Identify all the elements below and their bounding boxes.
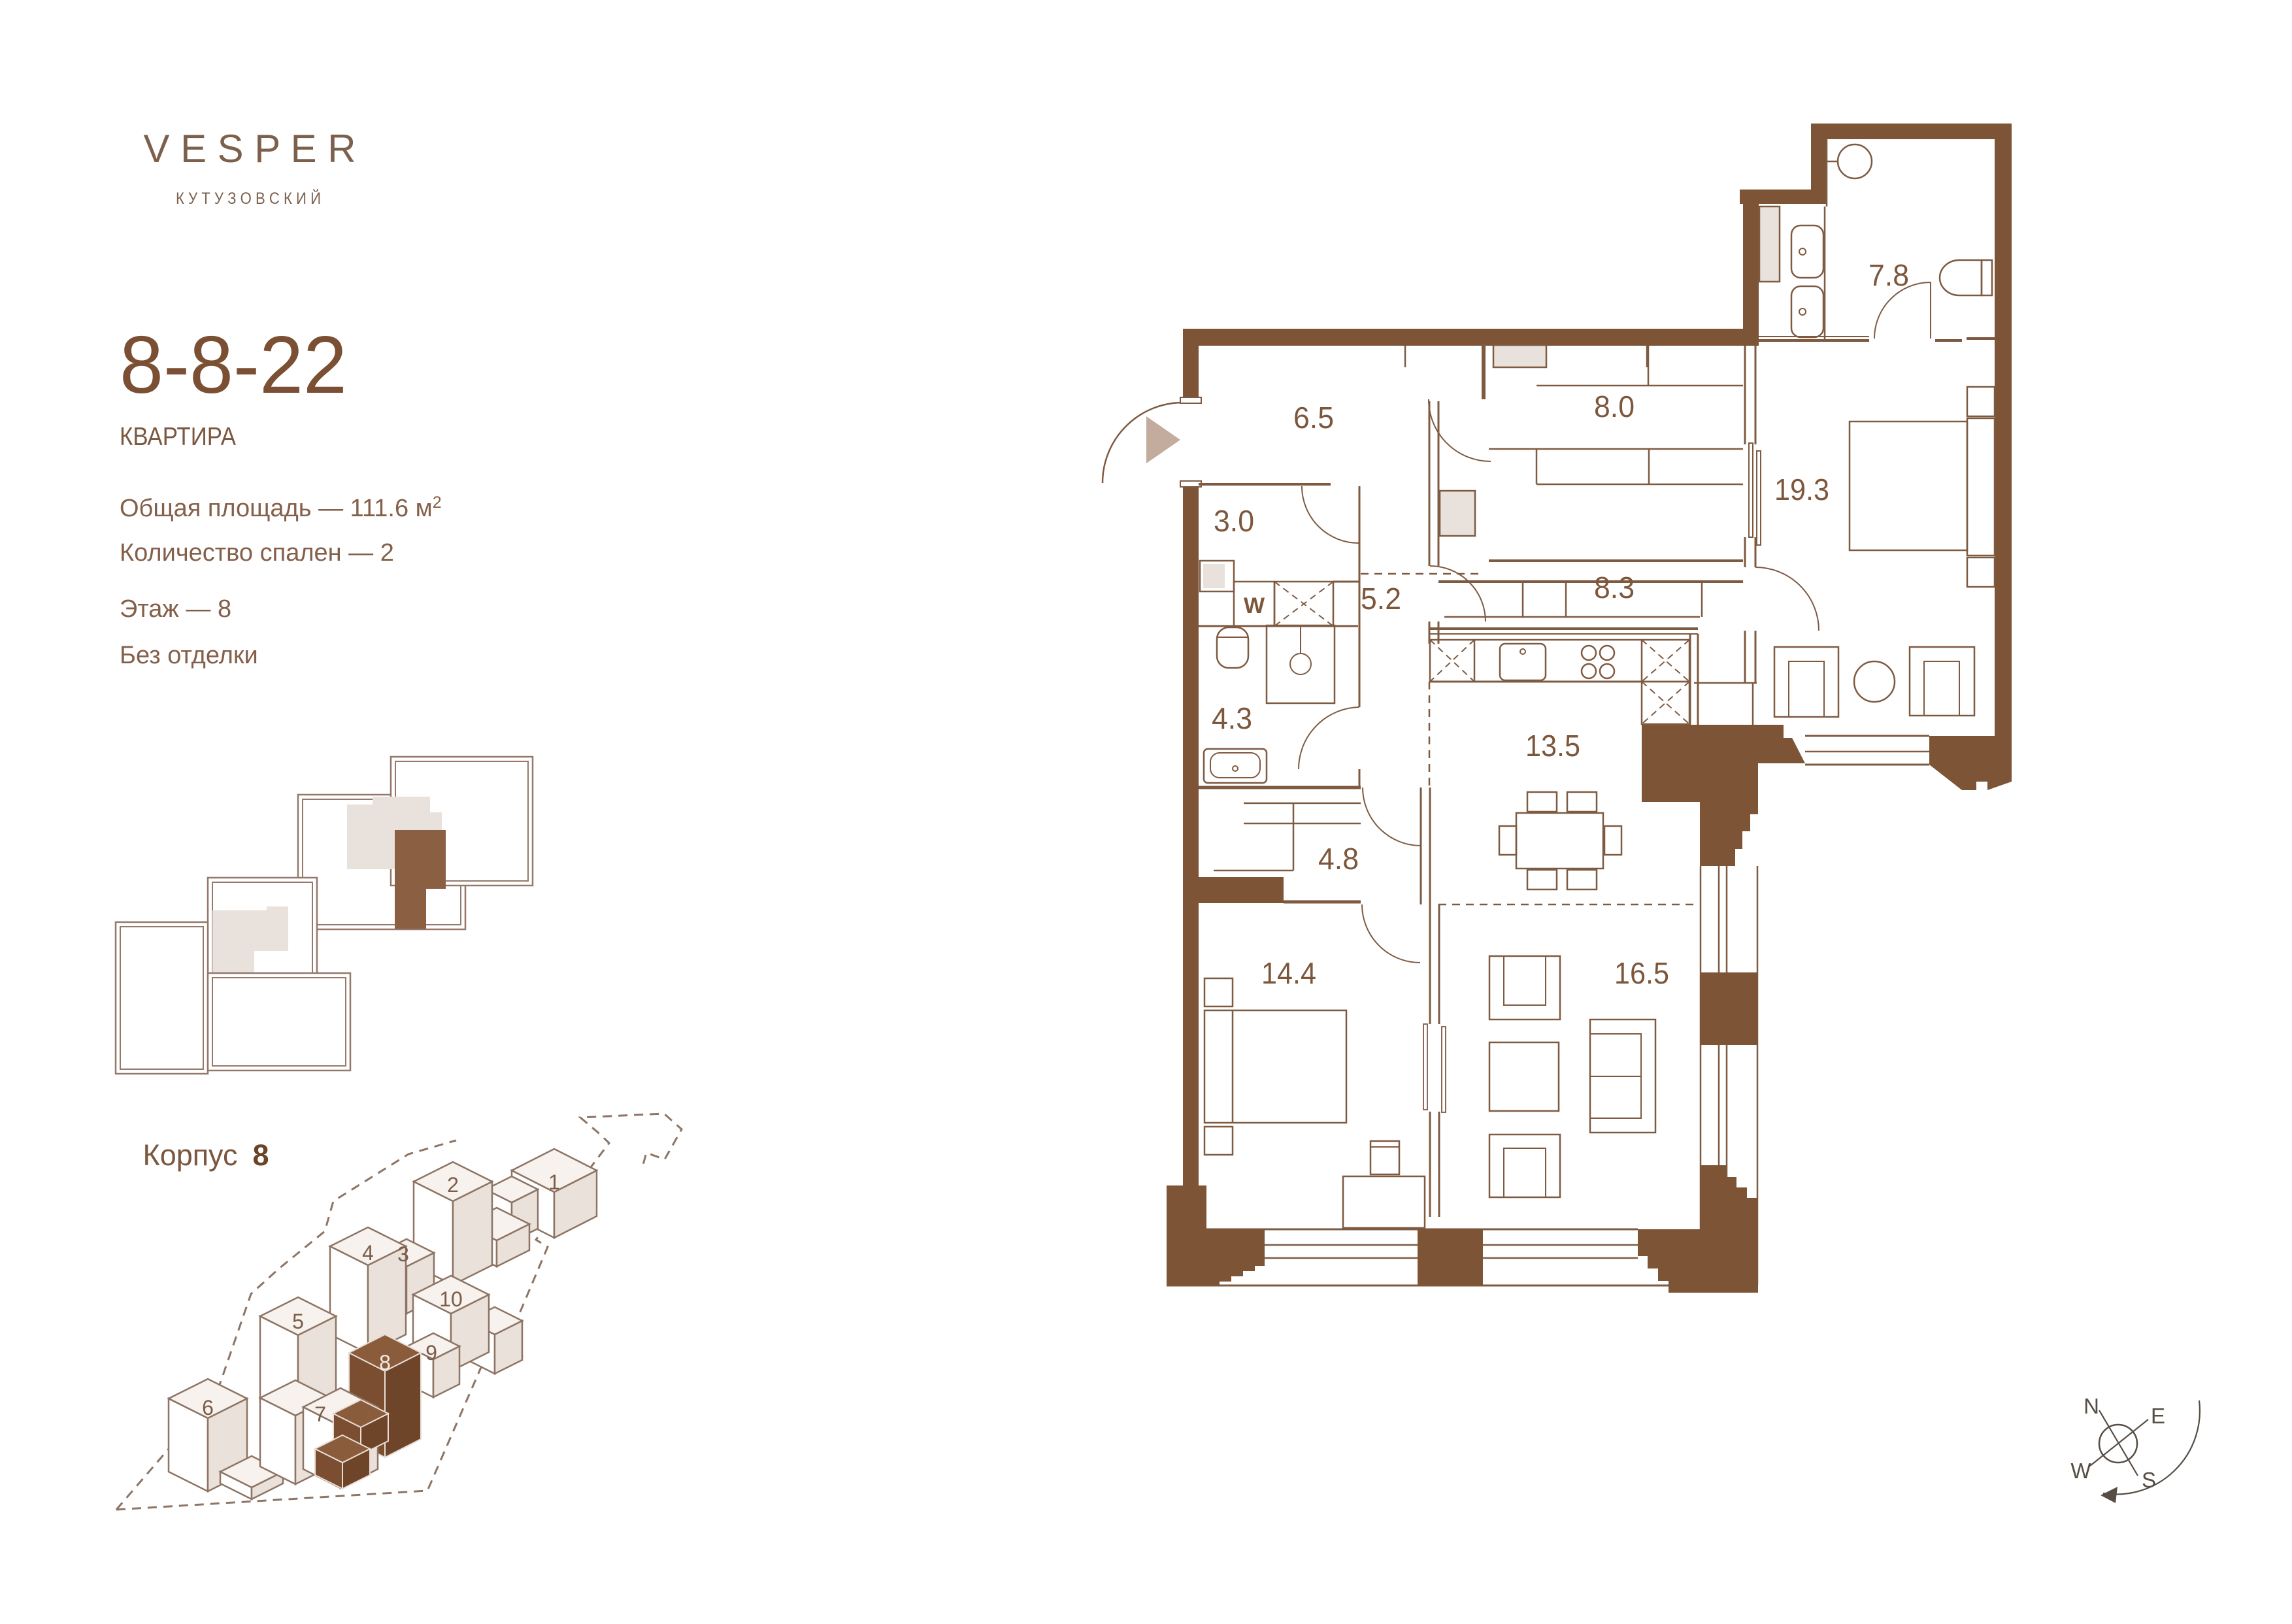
svg-text:4: 4 [362, 1241, 374, 1265]
svg-text:9: 9 [425, 1341, 437, 1365]
svg-text:2: 2 [447, 1173, 459, 1197]
svg-text:8: 8 [379, 1351, 391, 1374]
svg-text:4.8: 4.8 [1318, 842, 1359, 876]
svg-text:6: 6 [202, 1396, 214, 1419]
svg-text:5.2: 5.2 [1361, 582, 1401, 616]
svg-text:3.0: 3.0 [1214, 504, 1254, 538]
svg-text:Без отделки: Без отделки [120, 642, 258, 669]
svg-text:13.5: 13.5 [1525, 729, 1580, 763]
svg-text:1: 1 [548, 1170, 560, 1194]
svg-text:Общая площадь — 111.6 м2: Общая площадь — 111.6 м2 [120, 493, 442, 522]
svg-text:К У Т У З О В С К И Й: К У Т У З О В С К И Й [176, 188, 321, 208]
svg-text:W: W [1244, 593, 1265, 618]
svg-text:5: 5 [292, 1310, 304, 1333]
svg-text:Этаж — 8: Этаж — 8 [120, 595, 231, 623]
svg-text:3: 3 [397, 1242, 409, 1266]
svg-text:Корпус: Корпус [143, 1138, 238, 1172]
svg-text:7.8: 7.8 [1868, 258, 1909, 292]
svg-text:N: N [2084, 1394, 2099, 1418]
svg-text:Количество спален — 2: Количество спален — 2 [120, 539, 394, 567]
svg-text:14.4: 14.4 [1261, 956, 1316, 990]
svg-text:КВАРТИРА: КВАРТИРА [120, 423, 236, 451]
svg-text:8.0: 8.0 [1594, 389, 1635, 423]
svg-text:S: S [2142, 1468, 2156, 1492]
svg-text:16.5: 16.5 [1614, 956, 1669, 990]
svg-text:4.3: 4.3 [1212, 701, 1252, 735]
svg-text:6.5: 6.5 [1293, 401, 1334, 435]
svg-text:8-8-22: 8-8-22 [120, 320, 347, 410]
svg-text:V E S P E R: V E S P E R [144, 127, 356, 171]
svg-text:19.3: 19.3 [1774, 472, 1829, 506]
svg-text:W: W [2070, 1459, 2091, 1483]
svg-text:8.3: 8.3 [1594, 571, 1635, 605]
svg-text:8: 8 [252, 1138, 269, 1172]
svg-text:10: 10 [439, 1287, 463, 1311]
svg-text:7: 7 [314, 1402, 326, 1426]
svg-text:E: E [2151, 1404, 2165, 1428]
